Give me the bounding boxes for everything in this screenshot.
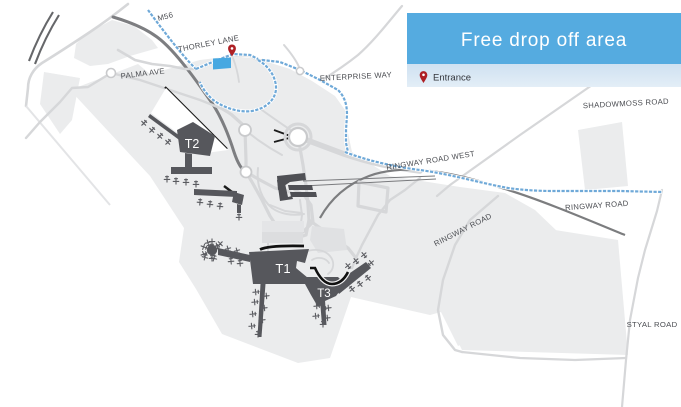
svg-text:Entrance: Entrance: [433, 73, 471, 84]
svg-text:T2: T2: [185, 137, 200, 151]
svg-text:Free drop off area: Free drop off area: [461, 30, 627, 51]
svg-text:T3: T3: [317, 288, 330, 300]
svg-text:T1: T1: [275, 261, 290, 276]
svg-text:STYAL ROAD: STYAL ROAD: [627, 320, 678, 329]
